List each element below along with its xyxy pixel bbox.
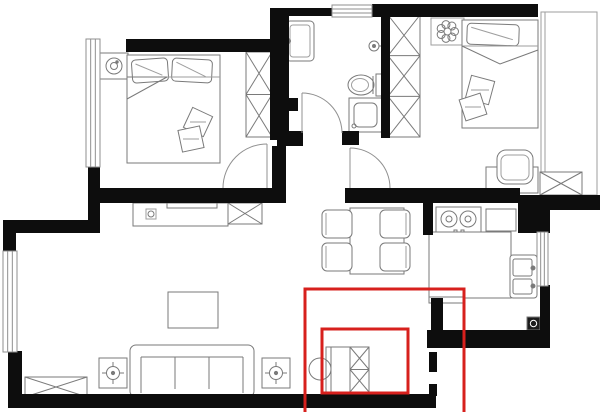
shower-head <box>373 45 376 48</box>
coffee-table <box>168 292 218 328</box>
window-kitchen-right <box>537 232 548 286</box>
kitchen-sink <box>531 266 535 270</box>
wall-left-below-window <box>8 351 22 400</box>
wall-bathroom-left <box>270 8 289 140</box>
wall-bathroom-right <box>381 15 390 138</box>
wall-kitchen-left-pier <box>423 193 433 235</box>
window-bathroom-top <box>332 5 372 17</box>
wall-top-right <box>372 4 538 17</box>
shoe-cabinet-open-panel <box>326 347 350 392</box>
single-bed-pillow <box>467 23 520 46</box>
wall-bathroom-bottom-right-pier <box>342 131 359 145</box>
floor-drain <box>527 317 540 330</box>
nightstand-lamp <box>100 53 128 79</box>
plant-pot <box>444 28 451 35</box>
nightstand-lamp <box>116 61 118 63</box>
sofa <box>130 345 254 397</box>
floor-plan-screenshot <box>0 0 600 412</box>
wall-kitchen-right-lower <box>540 285 550 332</box>
cutting-board <box>486 209 516 231</box>
wall-bathroom-left-bump <box>289 98 298 111</box>
wall-kitchen-bottom <box>427 330 550 348</box>
wall-entry-jamb-lower <box>429 384 437 396</box>
window-living-left <box>3 251 17 352</box>
wall-kitchen-corner-block <box>518 203 550 233</box>
wall-bedroom1-left-lower <box>88 165 100 220</box>
stove <box>436 207 481 234</box>
wall-kitchen-lower-left <box>431 298 443 333</box>
wall-left-above-window <box>3 233 16 253</box>
wall-bathroom-top <box>289 8 333 16</box>
wall-bottom <box>8 394 436 408</box>
plant-stand-right <box>274 371 277 374</box>
wall-living-top <box>97 188 286 203</box>
floor-plan <box>0 0 600 412</box>
window-bedroom1-left <box>86 39 100 167</box>
wall-bedroom1-top <box>126 39 273 52</box>
kitchen-sink <box>531 284 535 288</box>
soundbar <box>167 203 217 208</box>
double-bed-pillow <box>171 58 212 83</box>
wall-entry-jamb-upper <box>429 352 437 372</box>
plant-stand-left <box>111 371 114 374</box>
wall-bathroom-bottom-left-pier <box>277 131 303 146</box>
wall-left-step <box>3 220 100 233</box>
